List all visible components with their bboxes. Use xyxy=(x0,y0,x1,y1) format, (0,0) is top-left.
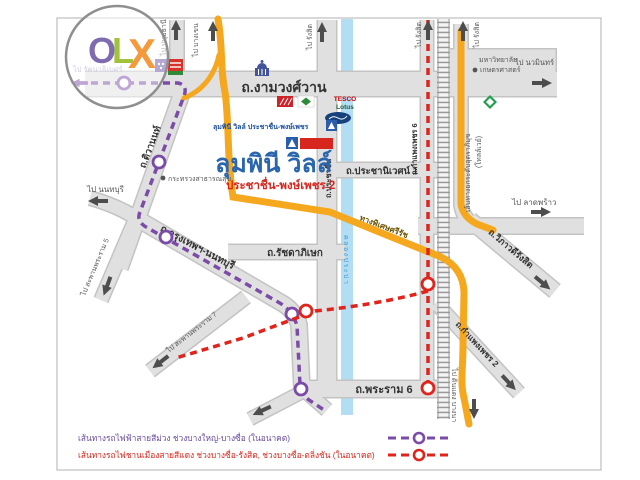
red-logo-chip xyxy=(168,59,183,75)
makro-logo xyxy=(298,96,314,107)
label-ratchadaphisek: ถ.รัชดาภิเษก xyxy=(267,247,323,259)
the-mall-logo xyxy=(277,96,293,107)
legend-purple-station xyxy=(414,433,424,443)
tesco-logo-text: TESCO xyxy=(334,96,356,103)
label-ngamwongwan: ถ.งามวงศ์วาน xyxy=(241,79,327,95)
olx-letter-x: X xyxy=(128,30,156,77)
red-station-rama6 xyxy=(422,382,434,394)
legend-purple-text: เส้นทางรถไฟฟ้าสายสีม่วง ช่วงบางใหญ่-บางซ… xyxy=(78,432,290,443)
lpn-logo-small xyxy=(326,120,337,131)
purple-station-krungthep-non xyxy=(160,231,172,243)
lotus-logo-text: Lotus xyxy=(336,104,354,111)
lpn-logo xyxy=(286,137,333,149)
map-canvas: คลองประปา ถ.งามวงศ์วาน ถ.ติวานนท์ ถ.ประช… xyxy=(0,0,640,480)
purple-station-rama6 xyxy=(295,383,307,395)
label-to-rangsit-prachachuen: ไป รังสิต xyxy=(305,24,314,51)
label-rama6: ถ.พระราม 6 xyxy=(355,384,412,396)
label-to-nawamin: ไป นวมินทร์ xyxy=(514,58,554,67)
label-tollway-1: เส้นทางยกระดับอุตราภิมุข xyxy=(464,133,472,212)
red-station-interchange xyxy=(300,305,312,317)
project-title: ลุมพินี วิลล์ xyxy=(215,149,332,180)
label-ku-2: เกษตรศาสตร์ xyxy=(480,66,521,74)
map-page: คลองประปา ถ.งามวงศ์วาน ถ.ติวานนท์ ถ.ประช… xyxy=(0,0,640,480)
legend-red-station xyxy=(414,450,424,460)
label-to-nonthaburi: ไป นนทบุรี xyxy=(86,185,125,194)
label-to-rangsit-tollway: ไป รังสิต xyxy=(472,22,481,49)
railway-track xyxy=(437,19,450,419)
moph-dot xyxy=(161,176,166,181)
label-to-dindaeng: ไป ดินแดง บางนา xyxy=(450,367,459,422)
canal-label: คลองประปา xyxy=(342,235,349,285)
label-kamphaengphet6: ถ.กำแพงเพชร 6 xyxy=(410,123,419,175)
label-to-bangkhen: ไป บางเขน xyxy=(191,23,200,58)
purple-station-tiwanon xyxy=(153,156,165,168)
label-to-latphrao: ไป ลาดพร้าว xyxy=(511,198,556,207)
legend-red-text: เส้นทางรถไฟชานเมืองสายสีแดง ช่วงบางซื่อ-… xyxy=(78,449,375,460)
label-prachaniwet1: ถ.ประชานิเวศน์ 1 xyxy=(346,165,419,177)
label-ku-1: มหาวิทยาลัย xyxy=(479,56,517,64)
ku-dot xyxy=(473,68,478,73)
label-to-rangsit-redline: ไป รังสิต xyxy=(414,22,423,49)
olx-watermark: O L X xyxy=(66,6,168,108)
red-station-north xyxy=(422,278,434,290)
label-tollway-2: (โทลล์เวย์) xyxy=(474,136,483,168)
